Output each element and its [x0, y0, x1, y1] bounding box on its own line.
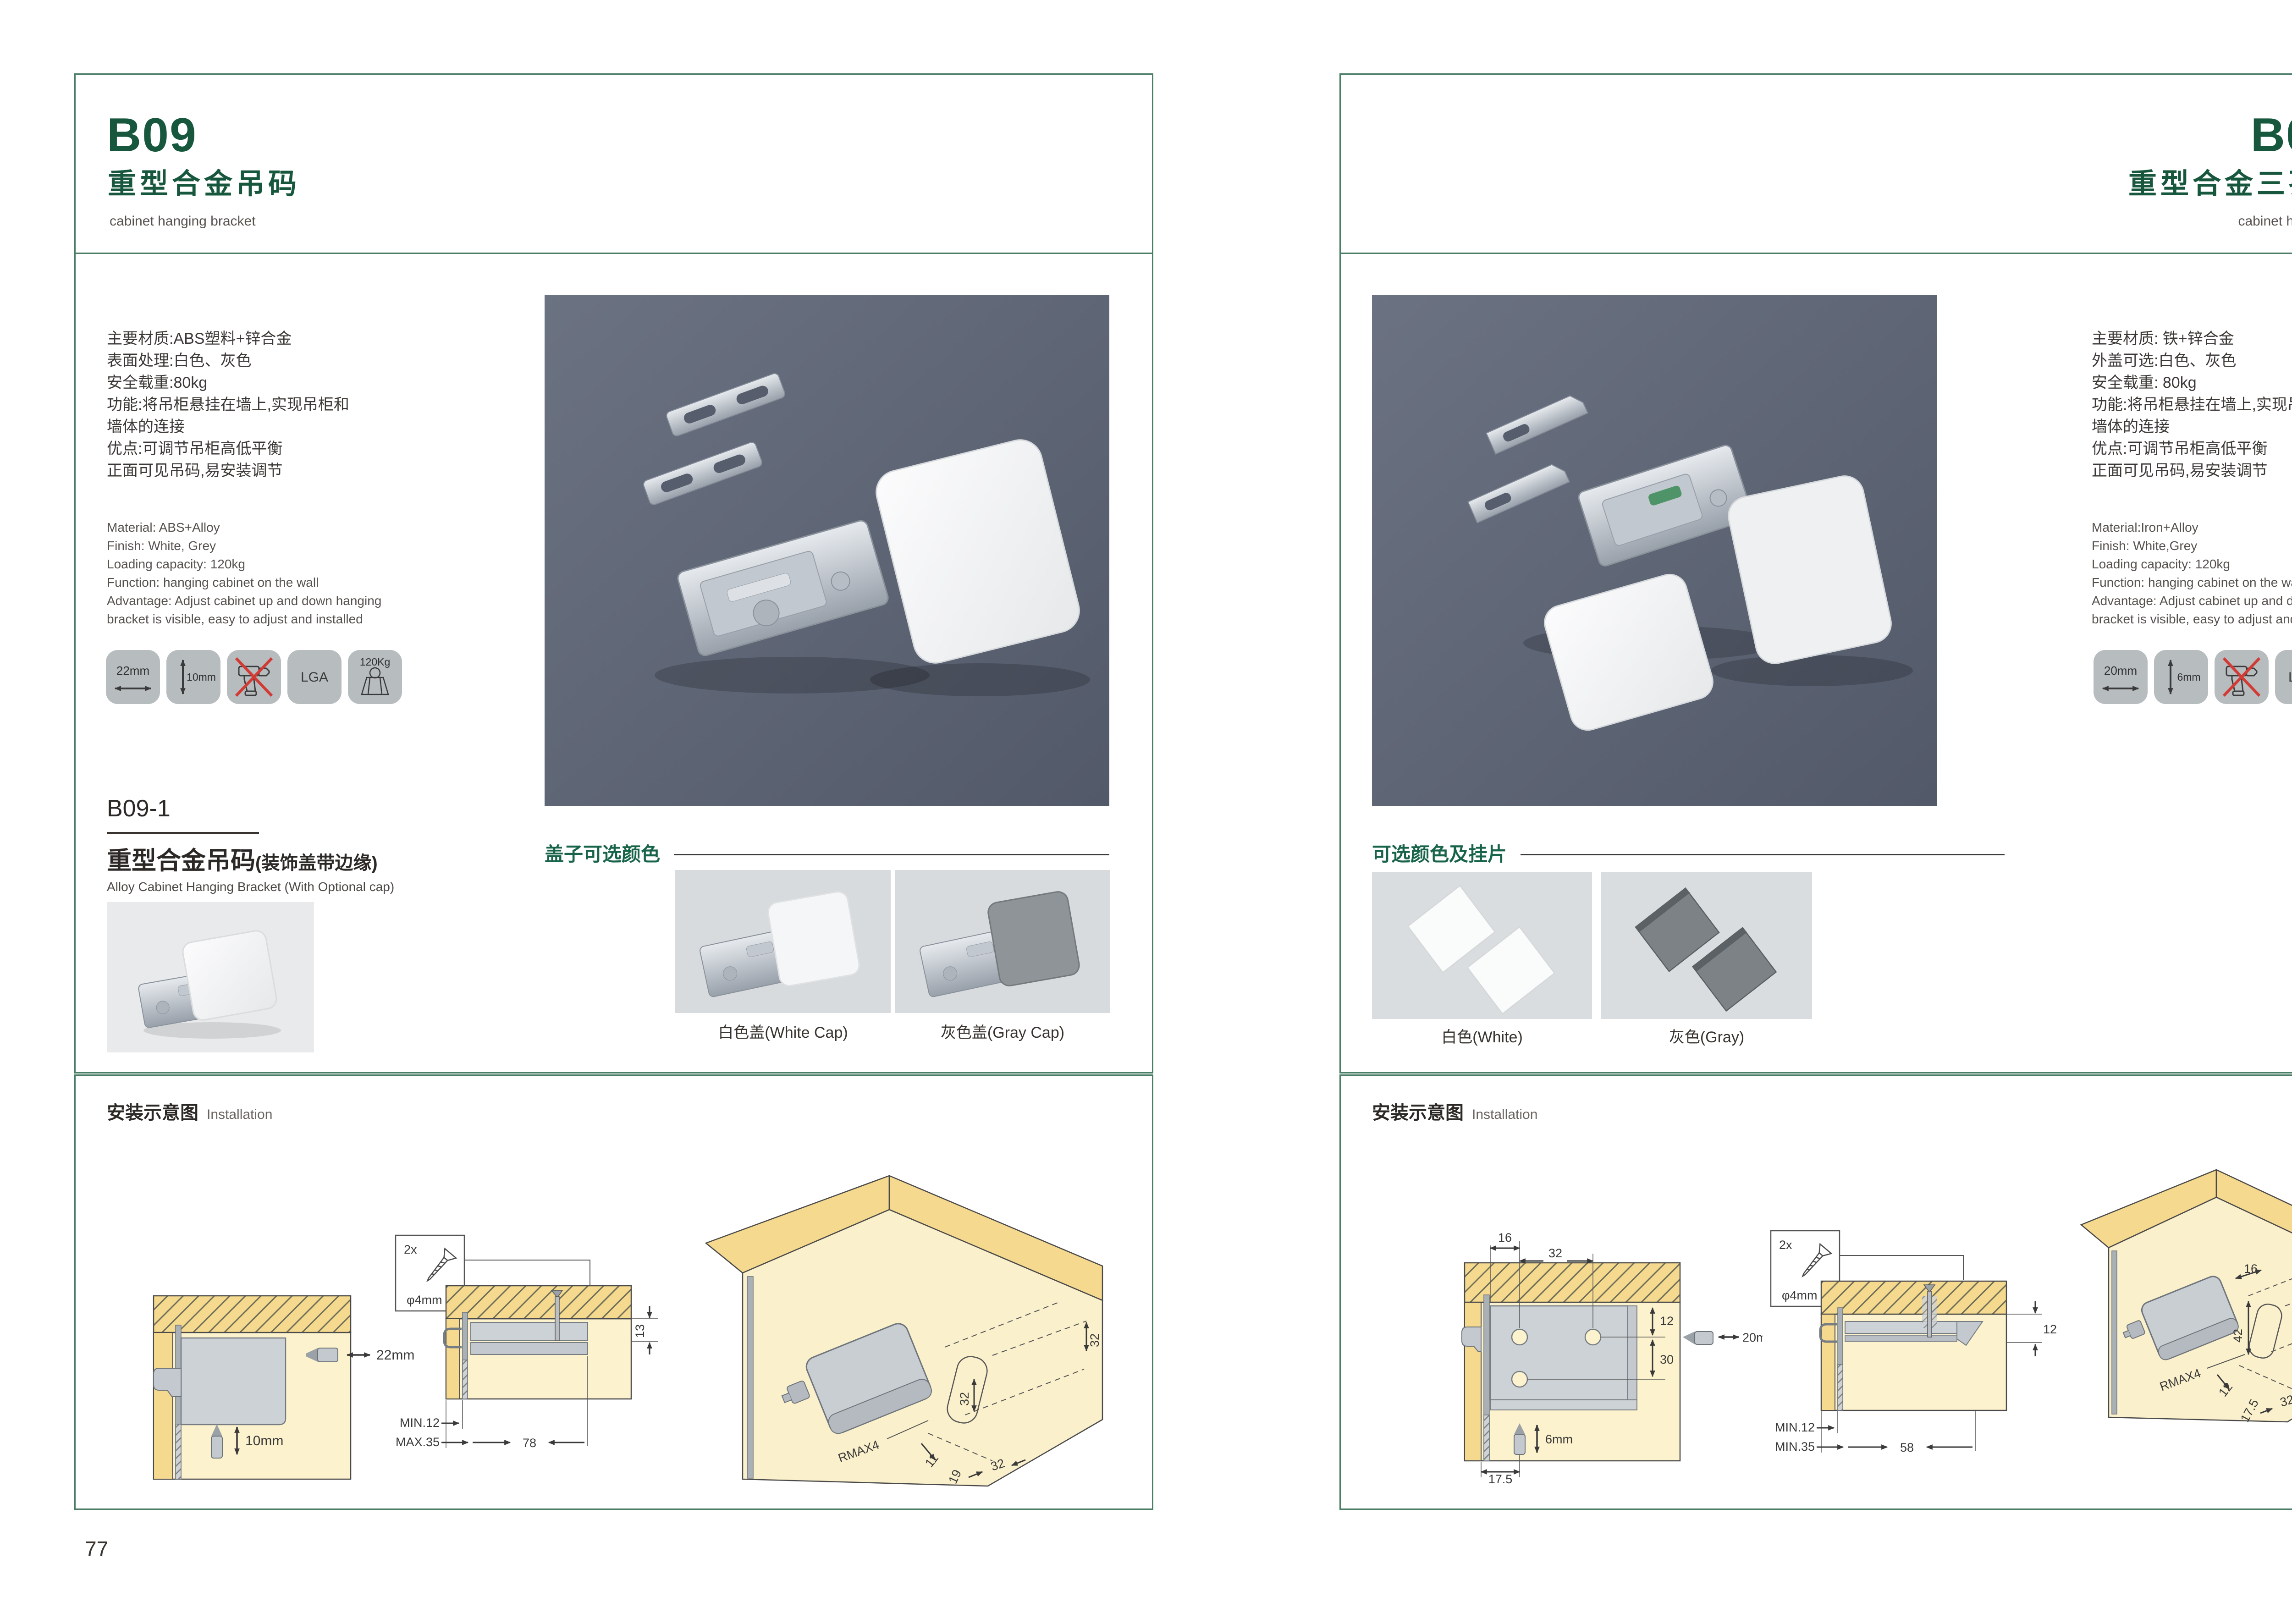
lga-cert-icon: LGA [287, 650, 342, 704]
no-drill-icon [227, 650, 281, 704]
svg-text:2x: 2x [404, 1243, 417, 1256]
svg-text:22mm: 22mm [116, 664, 149, 677]
no-drill-icon [2215, 650, 2269, 704]
install-diagram-dimensions: 2x φ4mm 12 MIN.12 MIN.35 58 [1767, 1227, 2061, 1465]
gray-cap-caption: 灰色盖(Gray Cap) [895, 1020, 1110, 1042]
color-options-label: 可选颜色及挂片 [1372, 845, 1507, 864]
main-product-photo [545, 295, 1109, 806]
svg-text:32: 32 [1548, 1246, 1562, 1260]
sub-product-title-cn: 重型合金吊码(装饰盖带边缘) [107, 848, 378, 873]
install-diagram-isometric: 16 12 42 RMAX4 12 17.5 32 [2056, 1140, 2292, 1433]
svg-text:16: 16 [1498, 1231, 1512, 1244]
svg-text:MAX.35: MAX.35 [396, 1435, 440, 1449]
feature-icon-row: 20mm 6mm LGA [2094, 650, 2292, 704]
sub-product-code: B09-1 [107, 797, 171, 820]
svg-text:30: 30 [1660, 1353, 1674, 1366]
sub-product-photo [107, 902, 314, 1052]
product-code: B09-3 [2251, 111, 2292, 159]
color-options-heading-row: 可选颜色及挂片 [1372, 845, 2005, 864]
feature-icon-row: 22mm 10mm LGA [106, 650, 402, 704]
product-title-cn: 重型合金吊码 [108, 170, 300, 198]
color-options-rule [1521, 854, 2005, 855]
svg-text:13: 13 [633, 1324, 647, 1338]
svg-text:17.5: 17.5 [1488, 1472, 1513, 1484]
svg-text:78: 78 [523, 1436, 536, 1450]
white-cap-photo [675, 870, 891, 1013]
cap-colors-rule [674, 854, 1109, 855]
white-clip-caption: 白色(White) [1372, 1024, 1592, 1047]
product-title-en: cabinet hanging bracket [110, 215, 256, 228]
svg-text:20mm: 20mm [1742, 1331, 1763, 1344]
svg-text:32: 32 [958, 1392, 971, 1406]
product-code: B09 [107, 111, 197, 159]
specs-chinese: 主要材质: 铁+锌合金 外盖可选:白色、灰色 安全载重: 80kg 功能:将吊柜… [2092, 328, 2292, 482]
page-right-main: B09-3 重型合金三孔吊码 cabinet hanging bracket [1339, 73, 2292, 1073]
width-dimension-icon: 20mm [2094, 650, 2148, 704]
svg-text:φ4mm: φ4mm [407, 1293, 442, 1307]
svg-text:12: 12 [1660, 1314, 1674, 1328]
page-number-left: 77 [85, 1536, 108, 1561]
lga-cert-icon: LGA [2275, 650, 2292, 704]
svg-text:58: 58 [1900, 1441, 1914, 1454]
specs-english: Material:Iron+Alloy Finish: White,Grey L… [2092, 518, 2292, 628]
page-left-main: B09 重型合金吊码 cabinet hanging bracket 主要材质:… [74, 73, 1153, 1073]
svg-text:MIN.35: MIN.35 [1775, 1440, 1815, 1453]
main-product-photo [1372, 295, 1937, 806]
white-cap-caption: 白色盖(White Cap) [675, 1020, 891, 1042]
svg-text:LGA: LGA [2288, 670, 2292, 685]
page-left-install: 安装示意图Installation 22mm 10mm 2x φ4mm [74, 1074, 1153, 1510]
sub-product-divider [107, 832, 259, 834]
svg-text:12: 12 [2043, 1322, 2057, 1336]
specs-english: Material: ABS+Alloy Finish: White, Grey … [107, 518, 565, 628]
specs-chinese: 主要材质:ABS塑料+锌合金 表面处理:白色、灰色 安全载重:80kg 功能:将… [107, 328, 556, 482]
installation-heading: 安装示意图Installation [1372, 1098, 1537, 1124]
product-title-en: cabinet hanging bracket [2238, 215, 2292, 228]
svg-text:6mm: 6mm [1545, 1432, 1573, 1446]
svg-text:φ4mm: φ4mm [1782, 1288, 1818, 1302]
header-divider [76, 253, 1152, 254]
svg-text:MIN.12: MIN.12 [1775, 1420, 1815, 1434]
install-diagram-plate: 16 32 12 30 20mm 6mm 17.5 [1451, 1227, 1763, 1484]
cap-colors-label: 盖子可选颜色 [545, 845, 660, 864]
gray-cap-photo [895, 870, 1110, 1013]
height-dimension-icon: 10mm [166, 650, 220, 704]
svg-text:20mm: 20mm [2104, 664, 2137, 677]
page-right-install: 安装示意图Installation 16 32 12 30 20mm [1339, 1074, 2292, 1510]
install-diagram-dimensions: 2x φ4mm MIN.12 MAX.35 78 13 [392, 1232, 685, 1461]
svg-text:LGA: LGA [301, 670, 328, 685]
svg-text:2x: 2x [1779, 1238, 1792, 1252]
gray-clip-caption: 灰色(Gray) [1601, 1024, 1812, 1047]
sub-product-title-en: Alloy Cabinet Hanging Bracket (With Opti… [107, 881, 394, 893]
load-capacity-icon: 120Kg [348, 650, 402, 704]
svg-text:10mm: 10mm [245, 1433, 283, 1448]
svg-text:6mm: 6mm [2177, 671, 2200, 683]
svg-text:32: 32 [1088, 1333, 1102, 1347]
installation-heading: 安装示意图Installation [107, 1098, 272, 1124]
white-clip-photo [1372, 872, 1592, 1019]
height-dimension-icon: 6mm [2154, 650, 2208, 704]
svg-text:10mm: 10mm [187, 671, 216, 683]
product-title-cn: 重型合金三孔吊码 [2128, 170, 2292, 198]
width-dimension-icon: 22mm [106, 650, 160, 704]
header-divider [1341, 253, 2292, 254]
gray-clip-photo [1601, 872, 1812, 1019]
svg-text:120Kg: 120Kg [360, 656, 391, 668]
install-diagram-isometric: 32 32 RMAX4 11 19 32 [672, 1140, 1116, 1488]
cap-colors-heading-row: 盖子可选颜色 [545, 845, 1109, 864]
svg-text:42: 42 [2231, 1329, 2245, 1343]
svg-text:MIN.12: MIN.12 [400, 1416, 440, 1430]
